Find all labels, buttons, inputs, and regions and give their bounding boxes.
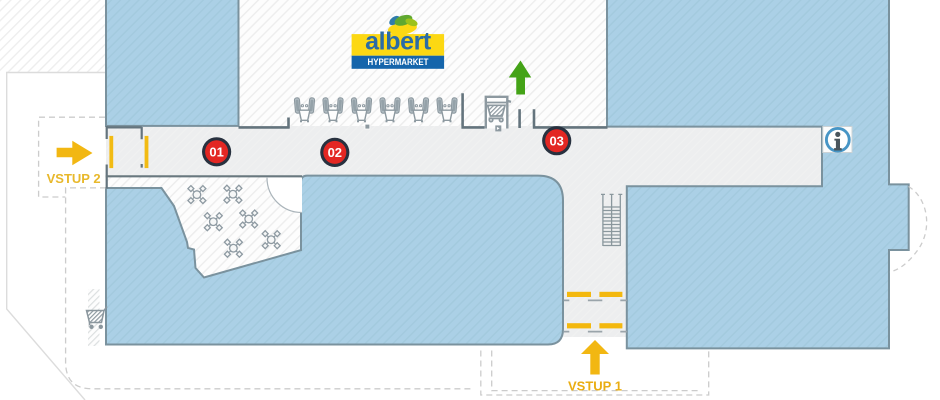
svg-text:VSTUP 1: VSTUP 1 [568, 379, 622, 394]
svg-text:albert: albert [365, 27, 432, 55]
svg-text:HYPERMARKET: HYPERMARKET [368, 57, 429, 67]
svg-text:01: 01 [209, 145, 223, 160]
svg-text:VSTUP 2: VSTUP 2 [47, 171, 101, 186]
svg-text:03: 03 [549, 133, 563, 148]
svg-text:02: 02 [328, 145, 342, 160]
